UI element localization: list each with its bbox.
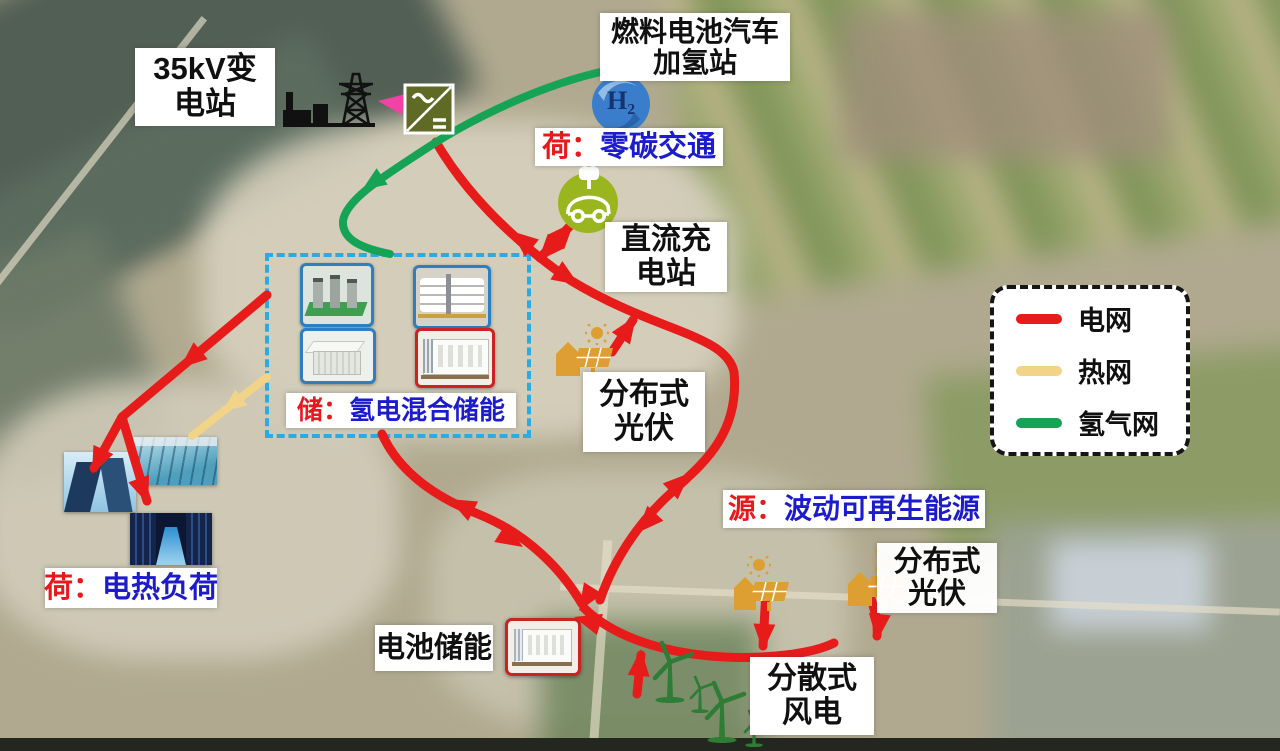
legend-grid-label: 电网 [1078,299,1132,338]
turbine-1 [655,643,692,703]
heat-load-label: 荷： 电热负荷 [45,568,217,608]
turbine-2 [707,683,744,743]
heat-load-prefix: 荷： [44,572,102,604]
h2-symbol: H₂ [590,86,652,116]
substation-line1: 35kV变 [153,52,256,87]
factory-chimney [286,92,293,110]
legend-heat-label: 热网 [1078,351,1132,390]
battery-label: 电池储能 [375,625,493,671]
pv-icon-bottom-mid [731,556,795,614]
legend-row-grid: 电网 [1016,299,1186,338]
source-text: 波动可再生能源 [784,493,980,524]
ground-line [283,123,375,127]
pv-right-line1: 分布式 [893,546,980,578]
storage-label: 储： 氢电混合储能 [286,393,516,428]
dc-line2: 电站 [636,257,696,291]
dc-line1: 直流充 [621,223,711,257]
heat-line-swatch [1016,366,1062,376]
zero-carbon-label: 荷： 零碳交通 [535,128,723,166]
wind-label: 分散式 风电 [750,657,874,735]
heat-load-text: 电热负荷 [102,572,218,604]
legend-hydrogen-label: 氢气网 [1078,403,1159,442]
wind-line1: 分散式 [767,662,857,696]
pv-right-line2: 光伏 [908,578,966,610]
wind-line2: 风电 [782,696,842,730]
legend-row-hydrogen: 氢气网 [1016,403,1186,442]
dc-charging-label: 直流充 电站 [605,222,727,292]
zero-carbon-text: 零碳交通 [600,131,716,163]
substation-label: 35kV变 电站 [135,48,275,126]
turbine-1b [691,677,713,713]
pv-mid-line1: 分布式 [599,378,689,412]
source-label: 源： 波动可再生能源 [723,490,985,528]
hydrogen-line-swatch [1016,418,1062,428]
factory-building [313,104,328,123]
grid-line-swatch [1016,314,1062,324]
legend: 电网 热网 氢气网 [990,285,1190,456]
fuel-cell-station-label: 燃料电池汽车 加氢站 [600,13,790,81]
pink-arrowhead [377,91,405,115]
source-prefix: 源： [728,493,784,524]
substation-line2: 电站 [174,87,236,122]
pv-mid-line2: 光伏 [614,412,674,446]
battery-text: 电池储能 [376,632,492,664]
red-storage-battery-link [382,434,582,604]
pv-mid-label: 分布式 光伏 [583,372,705,452]
fuel-line2: 加氢站 [653,47,737,78]
lattice-tower [339,74,373,125]
zero-carbon-prefix: 荷： [542,131,600,163]
legend-row-heat: 热网 [1016,351,1186,390]
storage-prefix: 储： [297,396,349,425]
pv-glyph [734,556,789,611]
storage-text: 氢电混合储能 [349,396,505,425]
converter-icon [403,83,455,135]
substation-tower-icon [283,68,378,134]
pv-glyph [556,324,613,378]
pv-right-label: 分布式 光伏 [877,543,997,613]
factory-body [283,110,311,123]
fuel-line1: 燃料电池汽车 [611,16,779,47]
